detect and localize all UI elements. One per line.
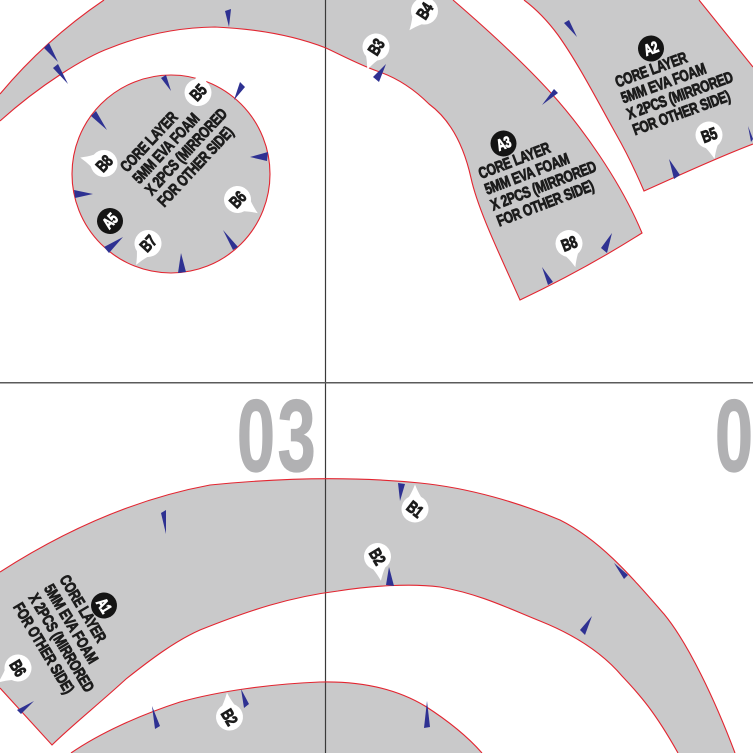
svg-text:0: 0 bbox=[715, 379, 753, 493]
svg-text:03: 03 bbox=[237, 379, 318, 493]
